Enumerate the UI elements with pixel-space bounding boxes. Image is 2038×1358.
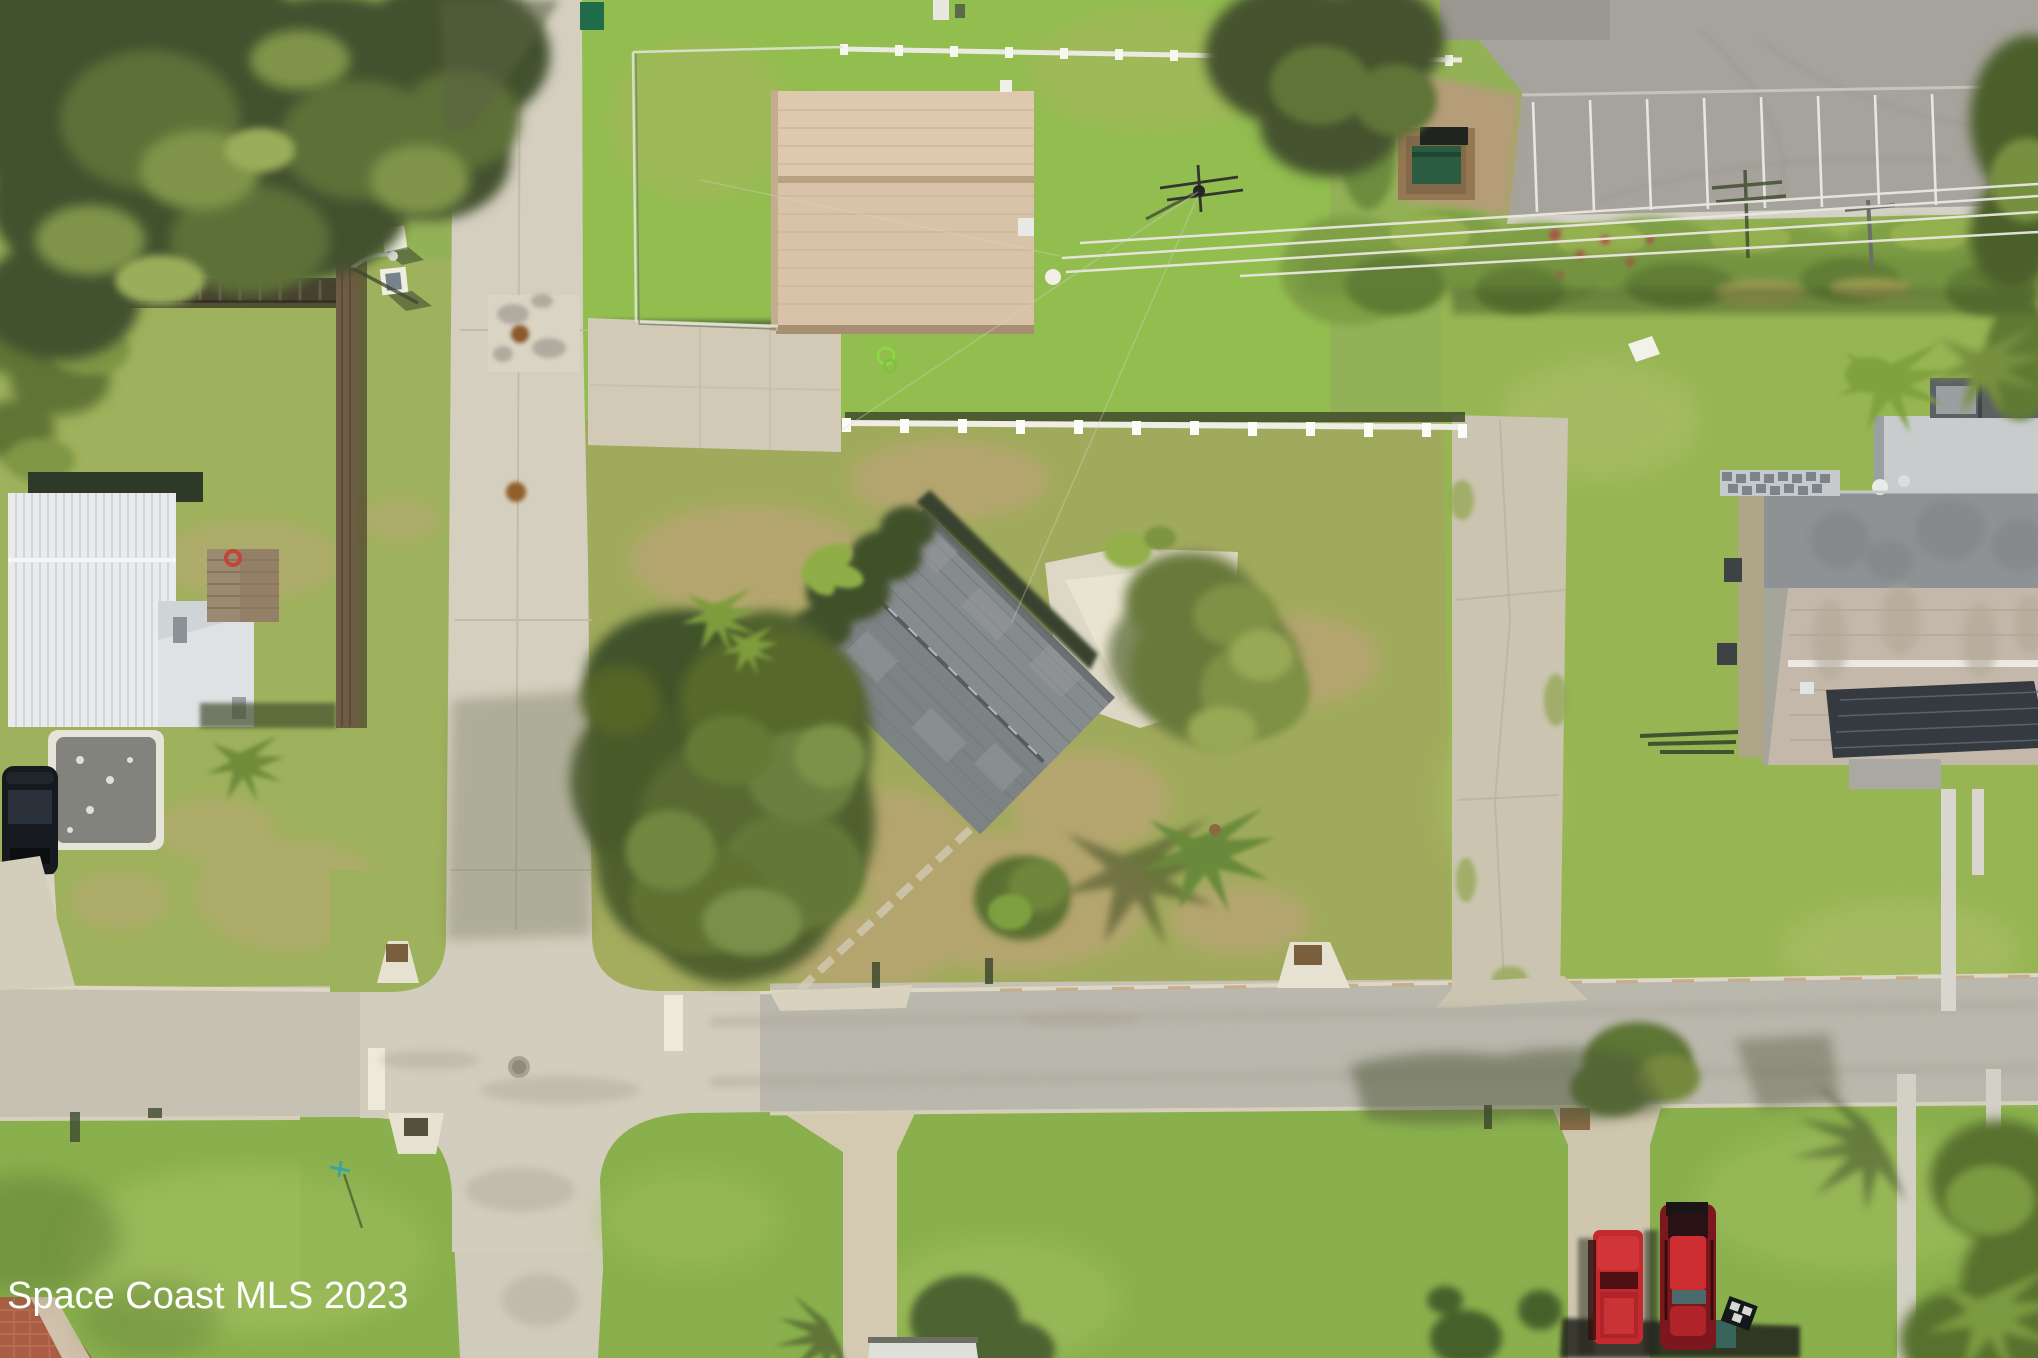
- svg-text:Space Coast MLS 2023: Space Coast MLS 2023: [7, 1275, 408, 1317]
